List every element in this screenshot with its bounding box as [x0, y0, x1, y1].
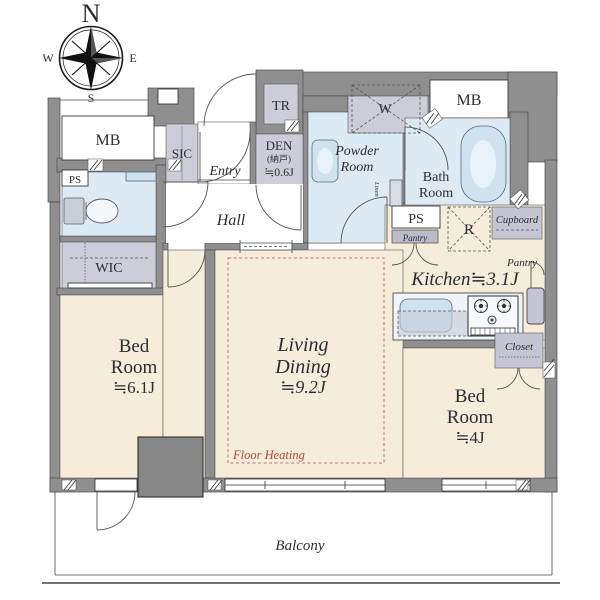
dishwasher-box [398, 311, 472, 336]
linen-label: Linen [373, 181, 380, 197]
balcony-door-opening [95, 479, 137, 491]
kitchen-label: Kitchen≒3.1J [410, 269, 520, 290]
powder-label-1: Powder [334, 144, 379, 159]
structural-column [138, 437, 203, 497]
ps-left-label: PS [69, 174, 81, 186]
ps-right-label: PS [408, 212, 424, 227]
bedroom2-label-3: ≒4J [455, 428, 485, 447]
stove-icon [468, 296, 518, 336]
compass-north-label: N [82, 0, 101, 28]
bedroom1-label-2: Room [111, 357, 158, 378]
living-label-1: Living [276, 334, 328, 356]
bedroom1-label-1: Bed [119, 336, 150, 357]
compass-east-label: E [129, 51, 136, 65]
window-living [225, 479, 385, 491]
washbasin-bowl [317, 148, 333, 174]
compass-south-label: S [88, 91, 95, 105]
bath-label-1: Bath [423, 170, 449, 185]
bedroom2-label-2: Room [447, 407, 494, 428]
hall-label: Hall [216, 212, 246, 229]
powder-label-2: Room [340, 160, 374, 175]
wic-label: WIC [95, 261, 122, 276]
closet-label: Closet [505, 341, 534, 353]
cupboard-label: Cupboard [496, 215, 539, 226]
linen-box [390, 180, 402, 206]
pantry-note-label: Pantry [506, 257, 537, 269]
compass-rose: N E S W [42, 0, 136, 105]
entry-label: Entry [208, 164, 241, 179]
mb-left-label: MB [96, 132, 121, 149]
den-label-2: (納戸) [267, 153, 291, 164]
toilet-icon [64, 198, 118, 224]
mb-right-label: MB [457, 92, 482, 109]
fridge-label: R [464, 222, 474, 238]
floor-plan: N E S W [0, 0, 600, 600]
den-label-1: DEN [266, 138, 293, 153]
bath-label-2: Room [419, 186, 453, 201]
floor-heating-label: Floor Heating [232, 448, 305, 462]
bedroom1-label-3: ≒6.1J [113, 378, 155, 397]
living-label-3: ≒9.2J [280, 377, 327, 397]
living-label-2: Dining [274, 356, 331, 378]
bathtub-inner [470, 140, 496, 188]
toilet-counter [126, 172, 156, 181]
tr-label: TR [272, 99, 291, 114]
sic-label: SIC [172, 146, 192, 161]
balcony-label: Balcony [275, 538, 324, 554]
washer-label: W [378, 102, 392, 117]
den-label-3: ≒0.6J [264, 165, 294, 179]
bedroom2-label-1: Bed [455, 386, 486, 407]
compass-west-label: W [42, 51, 54, 65]
pantry-box-label: Pantry [402, 233, 428, 243]
floor-plan-drawing: N E S W [0, 0, 600, 600]
